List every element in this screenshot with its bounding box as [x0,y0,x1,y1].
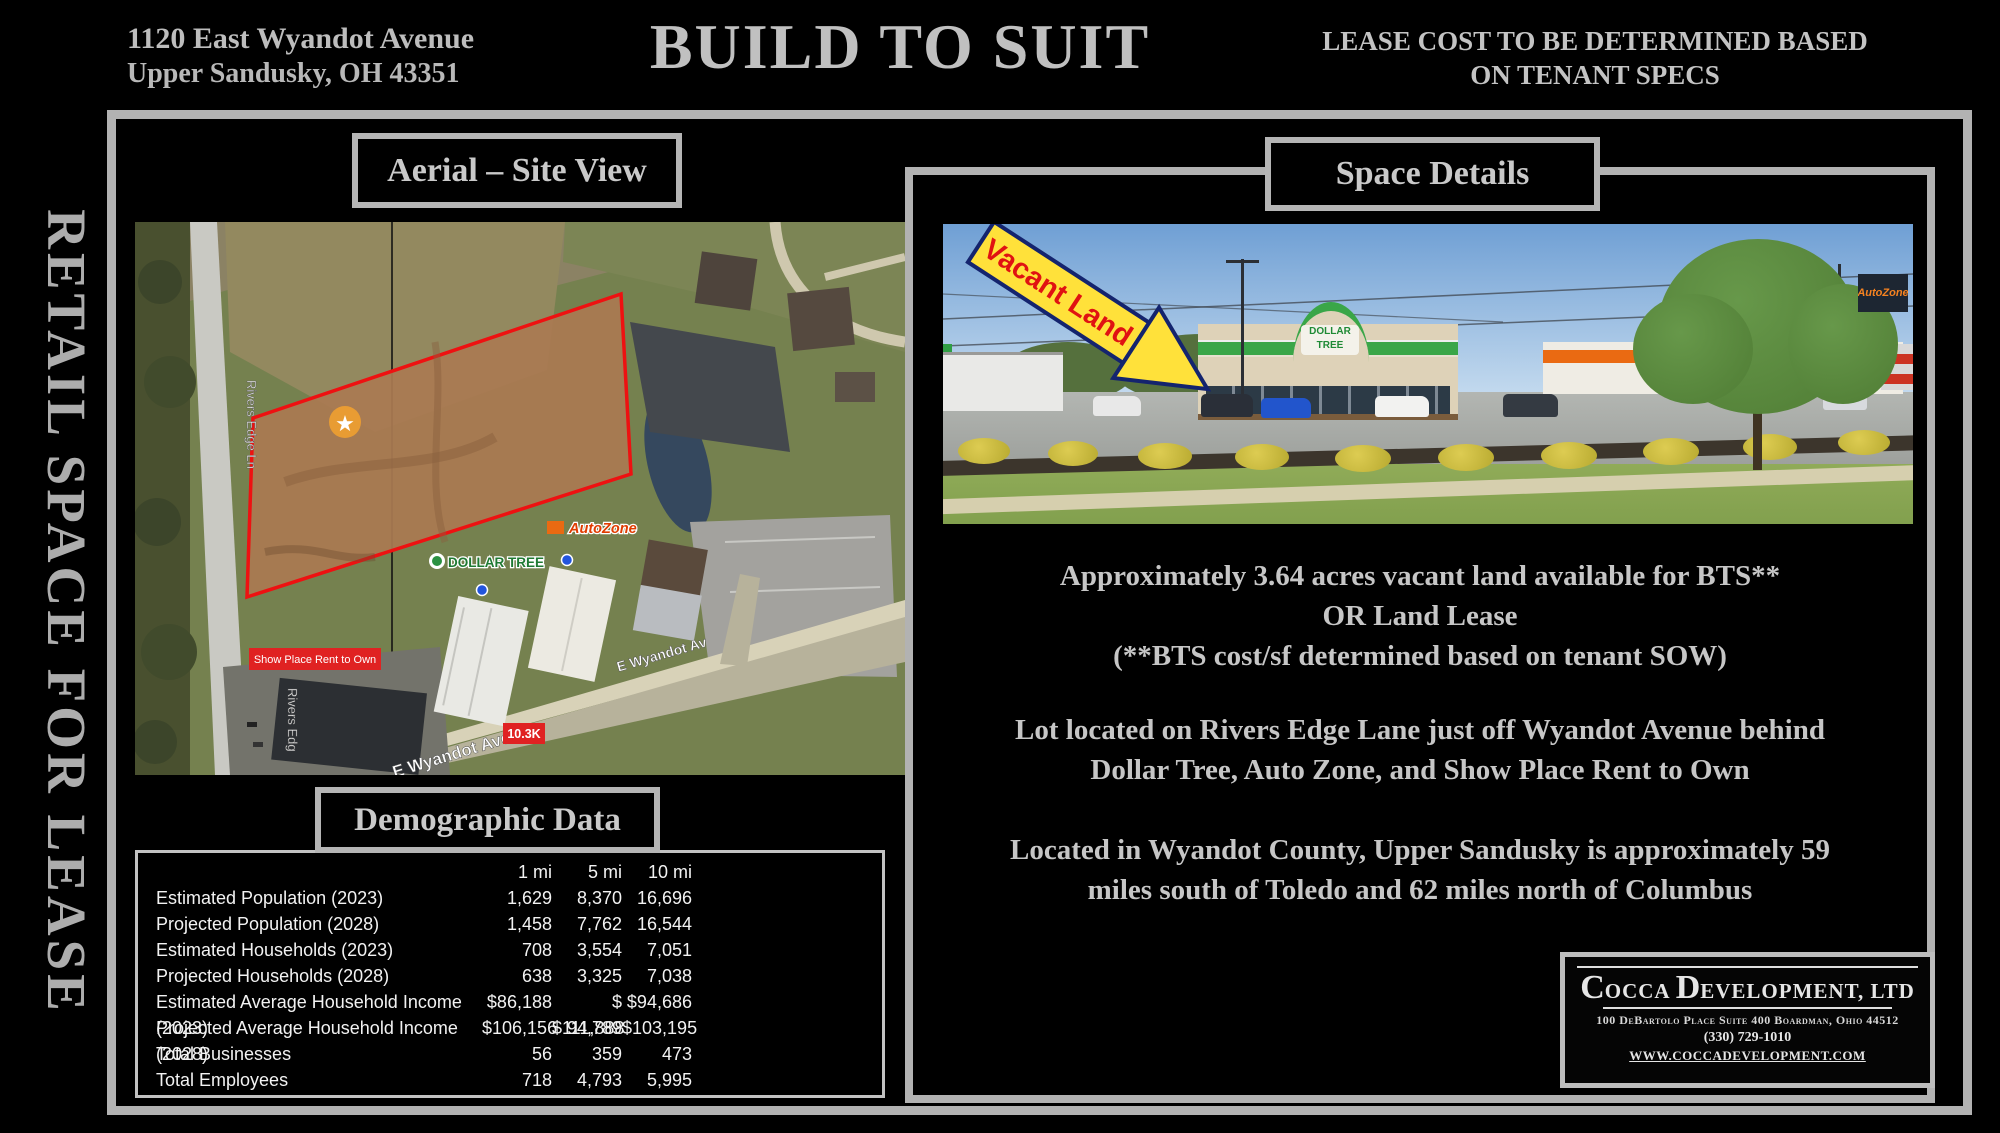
column-header-5mi: 5 mi [552,859,622,885]
divider [1603,1007,1892,1009]
table-row: Estimated Average Household Income (2023… [156,989,882,1015]
map-label-dollar-tree: DOLLAR TREE [448,555,544,570]
row-label: Projected Average Household Income (2028… [156,1015,482,1041]
row-label: Total Employees [156,1067,482,1093]
table-row: Projected Households (2028) 638 3,325 7,… [156,963,882,989]
page-title: BUILD TO SUIT [560,10,1240,84]
vacant-land-label: Vacant Land [977,233,1138,353]
paragraph-line: (**BTS cost/sf determined based on tenan… [915,636,1925,676]
vacant-land-arrow: Vacant Land [951,224,1291,512]
cell: 3,554 [552,937,622,963]
cell: 16,696 [622,885,692,911]
traffic-count-value: 10.3K [507,727,540,741]
cell: $103,195 [622,1015,692,1041]
divider [1577,966,1918,968]
cell: $86,188 [482,989,552,1015]
row-label: Projected Households (2028) [156,963,482,989]
row-label: Total Businesses [156,1041,482,1067]
aerial-section-title: Aerial – Site View [352,133,682,208]
demographics-section-title: Demographic Data [315,787,660,853]
table-row: Total Employees 718 4,793 5,995 [156,1067,882,1093]
table-row: Estimated Population (2023) 1,629 8,370 … [156,885,882,911]
car [1503,394,1558,417]
cell: 16,544 [622,911,692,937]
cell: $ 94,789 [552,989,622,1015]
paragraph-line: OR Land Lease [915,596,1925,636]
cell: 473 [622,1041,692,1067]
demographics-header-row: 1 mi 5 mi 10 mi [156,859,882,885]
cell: $106,156 [482,1015,552,1041]
cell: 7,051 [622,937,692,963]
row-label: Projected Population (2028) [156,911,482,937]
column-header-1mi: 1 mi [482,859,552,885]
company-logo-box: COCCA DEVELOPMENT, LTD 100 DeBartolo Pla… [1560,952,1935,1088]
cell: 708 [482,937,552,963]
paragraph-line: Approximately 3.64 acres vacant land ava… [915,556,1925,596]
paragraph-line: Lot located on Rivers Edge Lane just off… [915,710,1925,750]
cell: 1,458 [482,911,552,937]
lease-note: LEASE COST TO BE DETERMINED BASED ON TEN… [1275,24,1915,92]
cell: 8,370 [552,885,622,911]
company-name-part: D [1676,969,1701,1006]
star-marker-icon: ★ [335,411,355,436]
cell: 4,793 [552,1067,622,1093]
map-pin-dollar-tree [477,585,488,596]
row-label: Estimated Average Household Income (2023… [156,989,482,1015]
column-header-10mi: 10 mi [622,859,692,885]
space-details-paragraph-2: Lot located on Rivers Edge Lane just off… [915,710,1925,790]
space-details-paragraph-3: Located in Wyandot County, Upper Sandusk… [915,830,1925,910]
paragraph-line: Dollar Tree, Auto Zone, and Show Place R… [915,750,1925,790]
autozone-sign: AutoZone [1858,274,1908,312]
aerial-map-image: ★ Rivers Edge Ln Rivers Edg E Wyandot Av… [135,222,905,775]
property-address-line2: Upper Sandusky, OH 43351 [127,58,460,90]
vertical-banner: RETAIL SPACE FOR LEASE [35,163,98,1061]
flyer-page: 1120 East Wyandot Avenue Upper Sandusky,… [0,0,2000,1133]
site-photo: DOLLAR TREE AutoZon [943,224,1913,524]
road-label-rivers-edge-2: Rivers Edg [285,688,300,752]
car [1375,396,1429,417]
cell: 5,995 [622,1067,692,1093]
cell: 1,629 [482,885,552,911]
table-row: Estimated Households (2023) 708 3,554 7,… [156,937,882,963]
cell: $111,888 [552,1015,622,1041]
cell: 359 [552,1041,622,1067]
row-label: Estimated Households (2023) [156,937,482,963]
lease-note-line2: ON TENANT SPECS [1275,58,1915,92]
map-label-autozone: AutoZone [568,521,637,537]
map-pin-autozone [562,555,573,566]
road-label-rivers-edge: Rivers Edge Ln [244,380,259,469]
cell: $94,686 [622,989,692,1015]
space-details-section-title: Space Details [1265,137,1600,211]
cell: 7,038 [622,963,692,989]
table-row: Total Businesses 56 359 473 [156,1041,882,1067]
cell: 3,325 [552,963,622,989]
autozone-logo-box [547,521,564,534]
cell: 7,762 [552,911,622,937]
cell: 56 [482,1041,552,1067]
cell: 638 [482,963,552,989]
company-phone: (330) 729-1010 [1565,1030,1930,1046]
space-details-paragraph-1: Approximately 3.64 acres vacant land ava… [915,556,1925,676]
demographics-table: 1 mi 5 mi 10 mi Estimated Population (20… [135,850,885,1098]
dollar-tree-sign: DOLLAR TREE [1301,325,1359,355]
cell: 718 [482,1067,552,1093]
paragraph-line: miles south of Toledo and 62 miles north… [915,870,1925,910]
company-website-link[interactable]: WWW.COCCADEVELOPMENT.COM [1565,1048,1930,1064]
company-name: COCCA DEVELOPMENT, LTD [1565,969,1930,1007]
company-name-part: EVELOPMENT, LTD [1700,979,1915,1003]
table-row: Projected Population (2028) 1,458 7,762 … [156,911,882,937]
table-row: Projected Average Household Income (2028… [156,1015,882,1041]
paragraph-line: Located in Wyandot County, Upper Sandusk… [915,830,1925,870]
company-name-part: C [1580,969,1605,1006]
lease-note-line1: LEASE COST TO BE DETERMINED BASED [1275,24,1915,58]
row-label: Estimated Population (2023) [156,885,482,911]
property-address-line1: 1120 East Wyandot Avenue [127,22,474,56]
map-label-show-place: Show Place Rent to Own [254,654,376,666]
company-address: 100 DeBartolo Place Suite 400 Boardman, … [1565,1013,1930,1028]
company-name-part: OCCA [1605,979,1676,1003]
